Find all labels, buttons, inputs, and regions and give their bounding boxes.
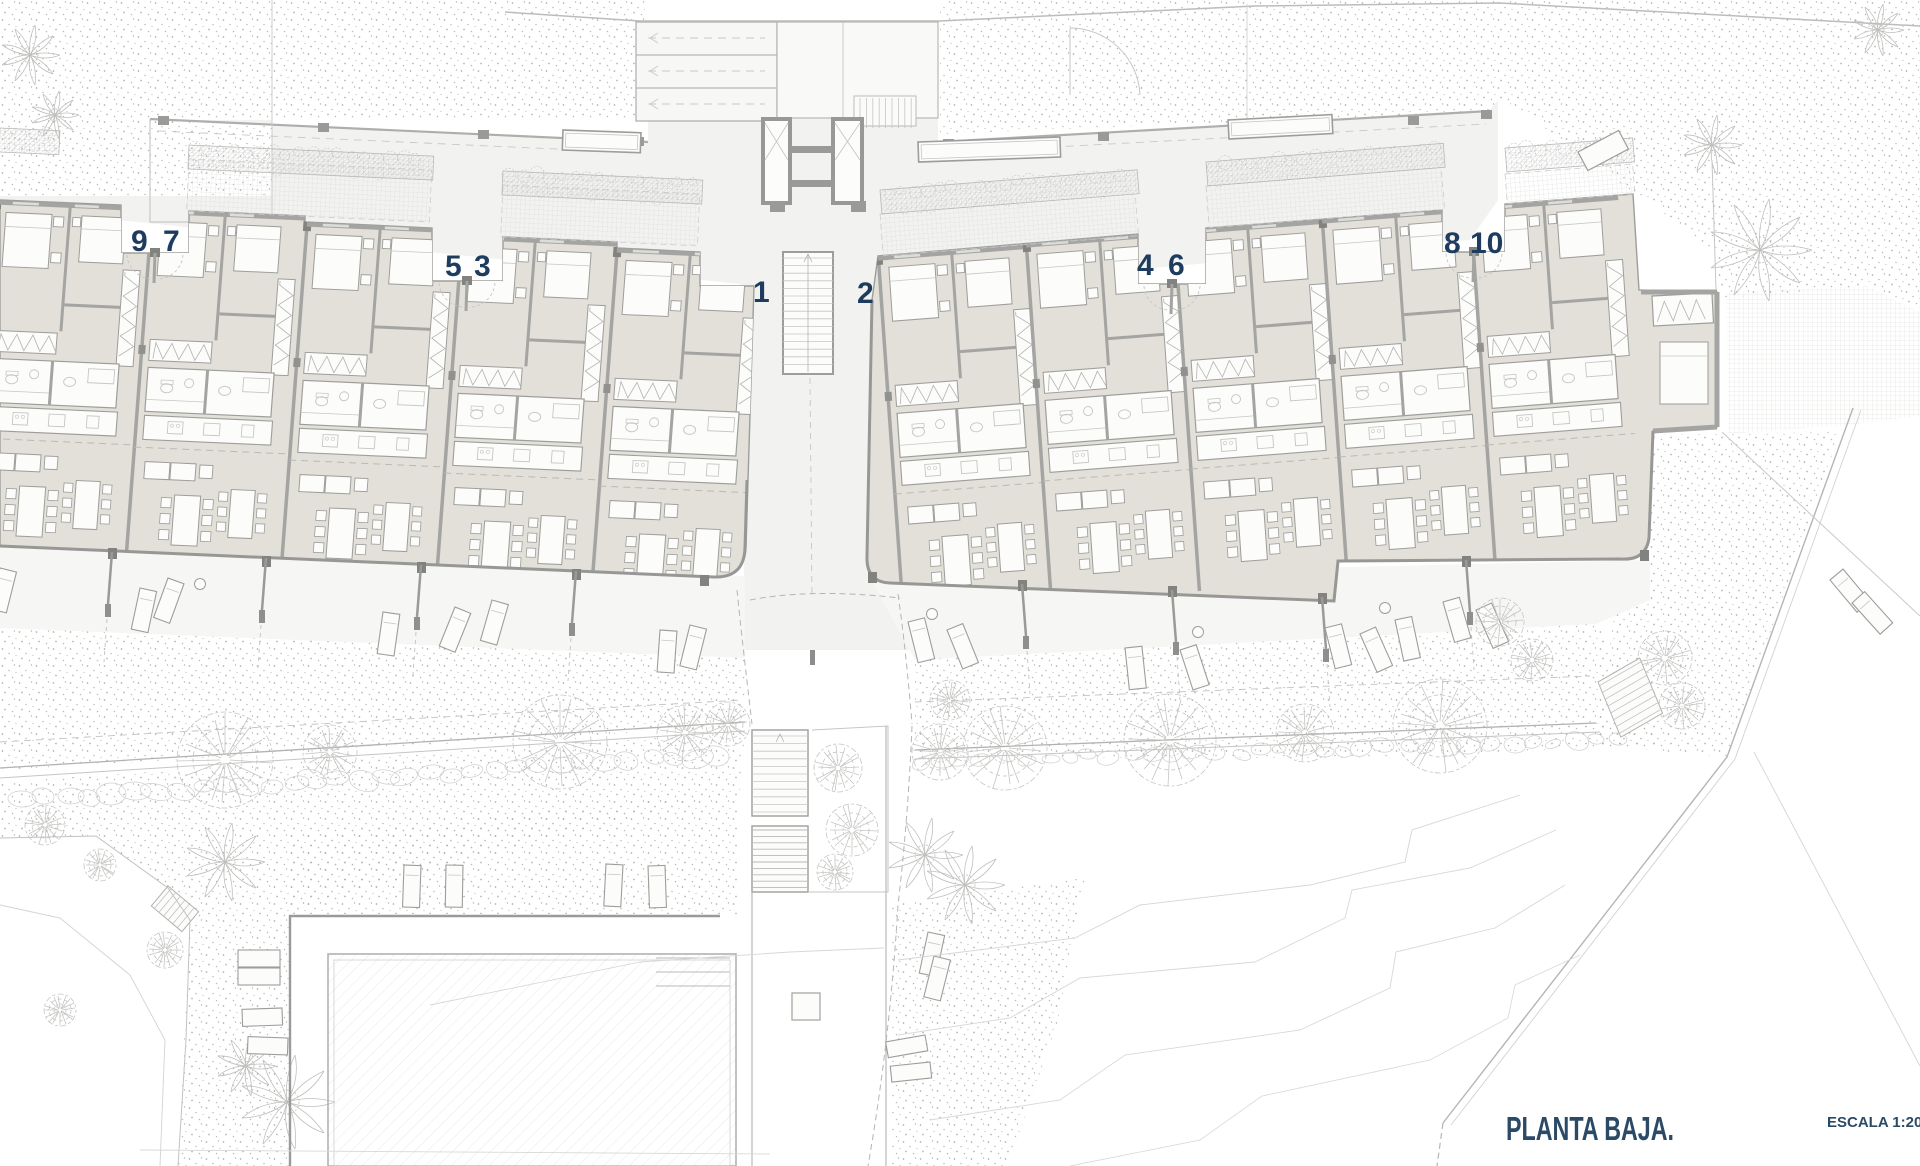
svg-text:1: 1	[753, 276, 770, 309]
svg-text:4: 4	[1137, 249, 1154, 282]
svg-text:ESCALA 1:200: ESCALA 1:200	[1827, 1114, 1920, 1131]
svg-text:10: 10	[1470, 227, 1503, 260]
svg-text:PLANTA BAJA.: PLANTA BAJA.	[1506, 1110, 1674, 1147]
svg-text:3: 3	[474, 250, 491, 283]
svg-text:6: 6	[1168, 249, 1185, 282]
svg-text:9: 9	[131, 225, 148, 258]
svg-text:5: 5	[445, 250, 462, 283]
svg-text:2: 2	[857, 277, 874, 310]
svg-text:7: 7	[163, 225, 180, 258]
svg-text:8: 8	[1444, 227, 1461, 260]
